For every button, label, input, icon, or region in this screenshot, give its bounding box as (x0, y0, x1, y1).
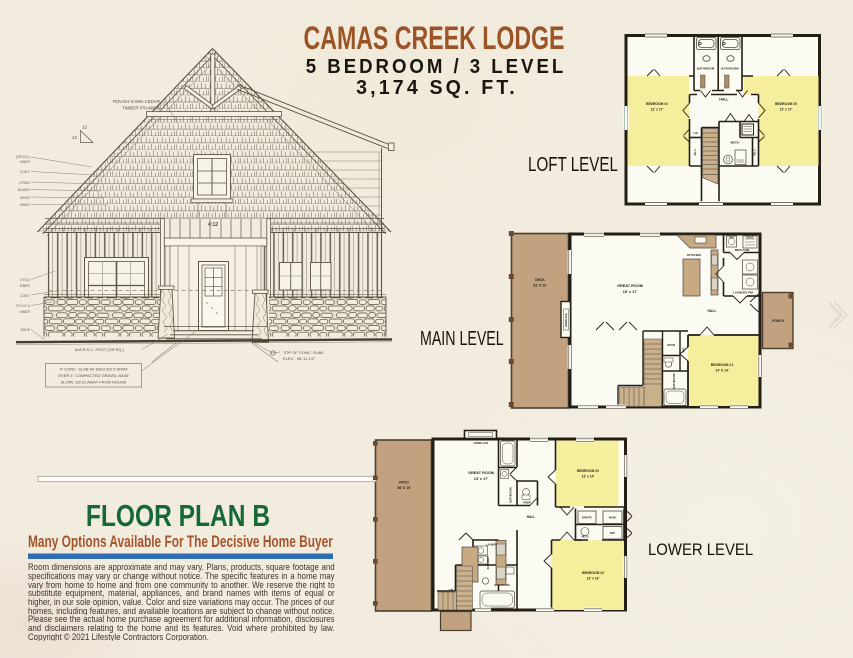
svg-text:KITCHEN: KITCHEN (486, 557, 490, 569)
svg-text:12: 12 (82, 125, 88, 130)
svg-text:STOR: STOR (667, 343, 675, 347)
svg-text:TOP OF CONC. SLAB: TOP OF CONC. SLAB (283, 350, 323, 355)
svg-text:(OR EQ.): (OR EQ.) (16, 155, 30, 159)
svg-text:CONT.: CONT. (20, 170, 30, 174)
svg-text:TIMBER FRAMING: TIMBER FRAMING (122, 106, 161, 111)
svg-text:MECH: MECH (582, 537, 589, 539)
svg-text:BATHROOM: BATHROOM (697, 67, 715, 71)
svg-text:HVAC: HVAC (746, 236, 753, 240)
svg-text:PANTRY: PANTRY (582, 517, 592, 520)
svg-text:BOARD: BOARD (18, 188, 31, 192)
svg-text:BEDROOM #3: BEDROOM #3 (577, 469, 599, 473)
svg-text:HALL: HALL (707, 309, 716, 313)
svg-text:BATHROOM: BATHROOM (721, 67, 739, 71)
svg-text:BATHROOM: BATHROOM (672, 373, 676, 388)
svg-text:MECH: MECH (731, 141, 740, 145)
svg-text:WNER: WNER (20, 160, 31, 164)
svg-text:WRAP: WRAP (20, 196, 31, 200)
svg-text:PNDR: PNDR (523, 501, 530, 505)
svg-text:12' x 17': 12' x 17' (780, 108, 793, 112)
svg-text:KITCHEN: KITCHEN (687, 253, 702, 257)
svg-text:BEDROOM #5: BEDROOM #5 (775, 102, 797, 106)
svg-text:BEDROOM #4: BEDROOM #4 (646, 102, 668, 106)
svg-text:19' x 17': 19' x 17' (623, 290, 638, 294)
svg-text:13' x 14': 13' x 14' (587, 577, 600, 581)
svg-text:PORCH: PORCH (772, 319, 784, 323)
svg-text:12' x 17': 12' x 17' (651, 108, 664, 112)
svg-text:WASH: WASH (609, 517, 617, 520)
svg-text:4:12: 4:12 (208, 222, 218, 228)
svg-text:RADE: RADE (21, 328, 31, 332)
svg-text:ELEV : 98'-11 1/2": ELEV : 98'-11 1/2" (283, 356, 316, 361)
svg-text:HALL: HALL (527, 515, 536, 519)
svg-text:BATHROOM: BATHROOM (509, 487, 513, 502)
svg-text:DECK: DECK (535, 278, 545, 282)
svg-text:8x8 R.S.C. POST (OR EQ.): 8x8 R.S.C. POST (OR EQ.) (75, 347, 125, 352)
svg-text:WNER: WNER (20, 310, 31, 314)
svg-text:FIREPLACE: FIREPLACE (565, 313, 568, 327)
svg-text:GREAT ROOM: GREAT ROOM (617, 284, 643, 288)
svg-text:WNER: WNER (20, 284, 31, 288)
svg-text:MECH RM: MECH RM (735, 248, 750, 252)
svg-text:FIREPLACE: FIREPLACE (474, 441, 489, 445)
svg-text:GREAT ROOM: GREAT ROOM (468, 471, 494, 475)
svg-text:58' X 10': 58' X 10' (397, 486, 410, 490)
svg-text:W.I.C.: W.I.C. (753, 148, 757, 155)
svg-text:SLOPE 1/8:12 AWAY FROM HOUSE: SLOPE 1/8:12 AWAY FROM HOUSE (61, 380, 127, 385)
svg-text:BEDROOM #1: BEDROOM #1 (711, 363, 734, 367)
svg-text:12: 12 (72, 135, 78, 140)
svg-text:4" CONC. SLAB W/ 6/6x2.5/2.5 W: 4" CONC. SLAB W/ 6/6x2.5/2.5 WWM (60, 367, 128, 372)
svg-text:W.I.C.: W.I.C. (693, 148, 697, 155)
svg-text:WH: WH (729, 236, 733, 240)
svg-text:2 EQ.): 2 EQ.) (20, 278, 30, 282)
svg-text:LIN: LIN (693, 131, 697, 135)
svg-text:OPING: OPING (19, 181, 30, 185)
svg-text:13' x 14': 13' x 14' (582, 475, 595, 479)
svg-text:PATIO: PATIO (399, 481, 409, 485)
svg-text:BEDROOM #2: BEDROOM #2 (582, 571, 604, 575)
svg-text:LAUNDRY RM: LAUNDRY RM (733, 291, 754, 295)
svg-text:DRY: DRY (610, 532, 616, 535)
svg-text:STYLE &: STYLE & (16, 304, 31, 308)
svg-text:ROUGH SAWN CEDAR: ROUGH SAWN CEDAR (113, 99, 160, 104)
svg-text:HALL: HALL (719, 98, 728, 102)
svg-text:83' X 13': 83' X 13' (533, 284, 546, 288)
svg-text:CONT.: CONT. (20, 294, 30, 298)
svg-text:OVER 4" COMPACTED GRAVEL BASE: OVER 4" COMPACTED GRAVEL BASE (58, 373, 129, 378)
svg-text:13' x 17': 13' x 17' (474, 477, 489, 481)
svg-text:WNER: WNER (20, 203, 31, 207)
svg-text:14' X 14': 14' X 14' (715, 369, 728, 373)
